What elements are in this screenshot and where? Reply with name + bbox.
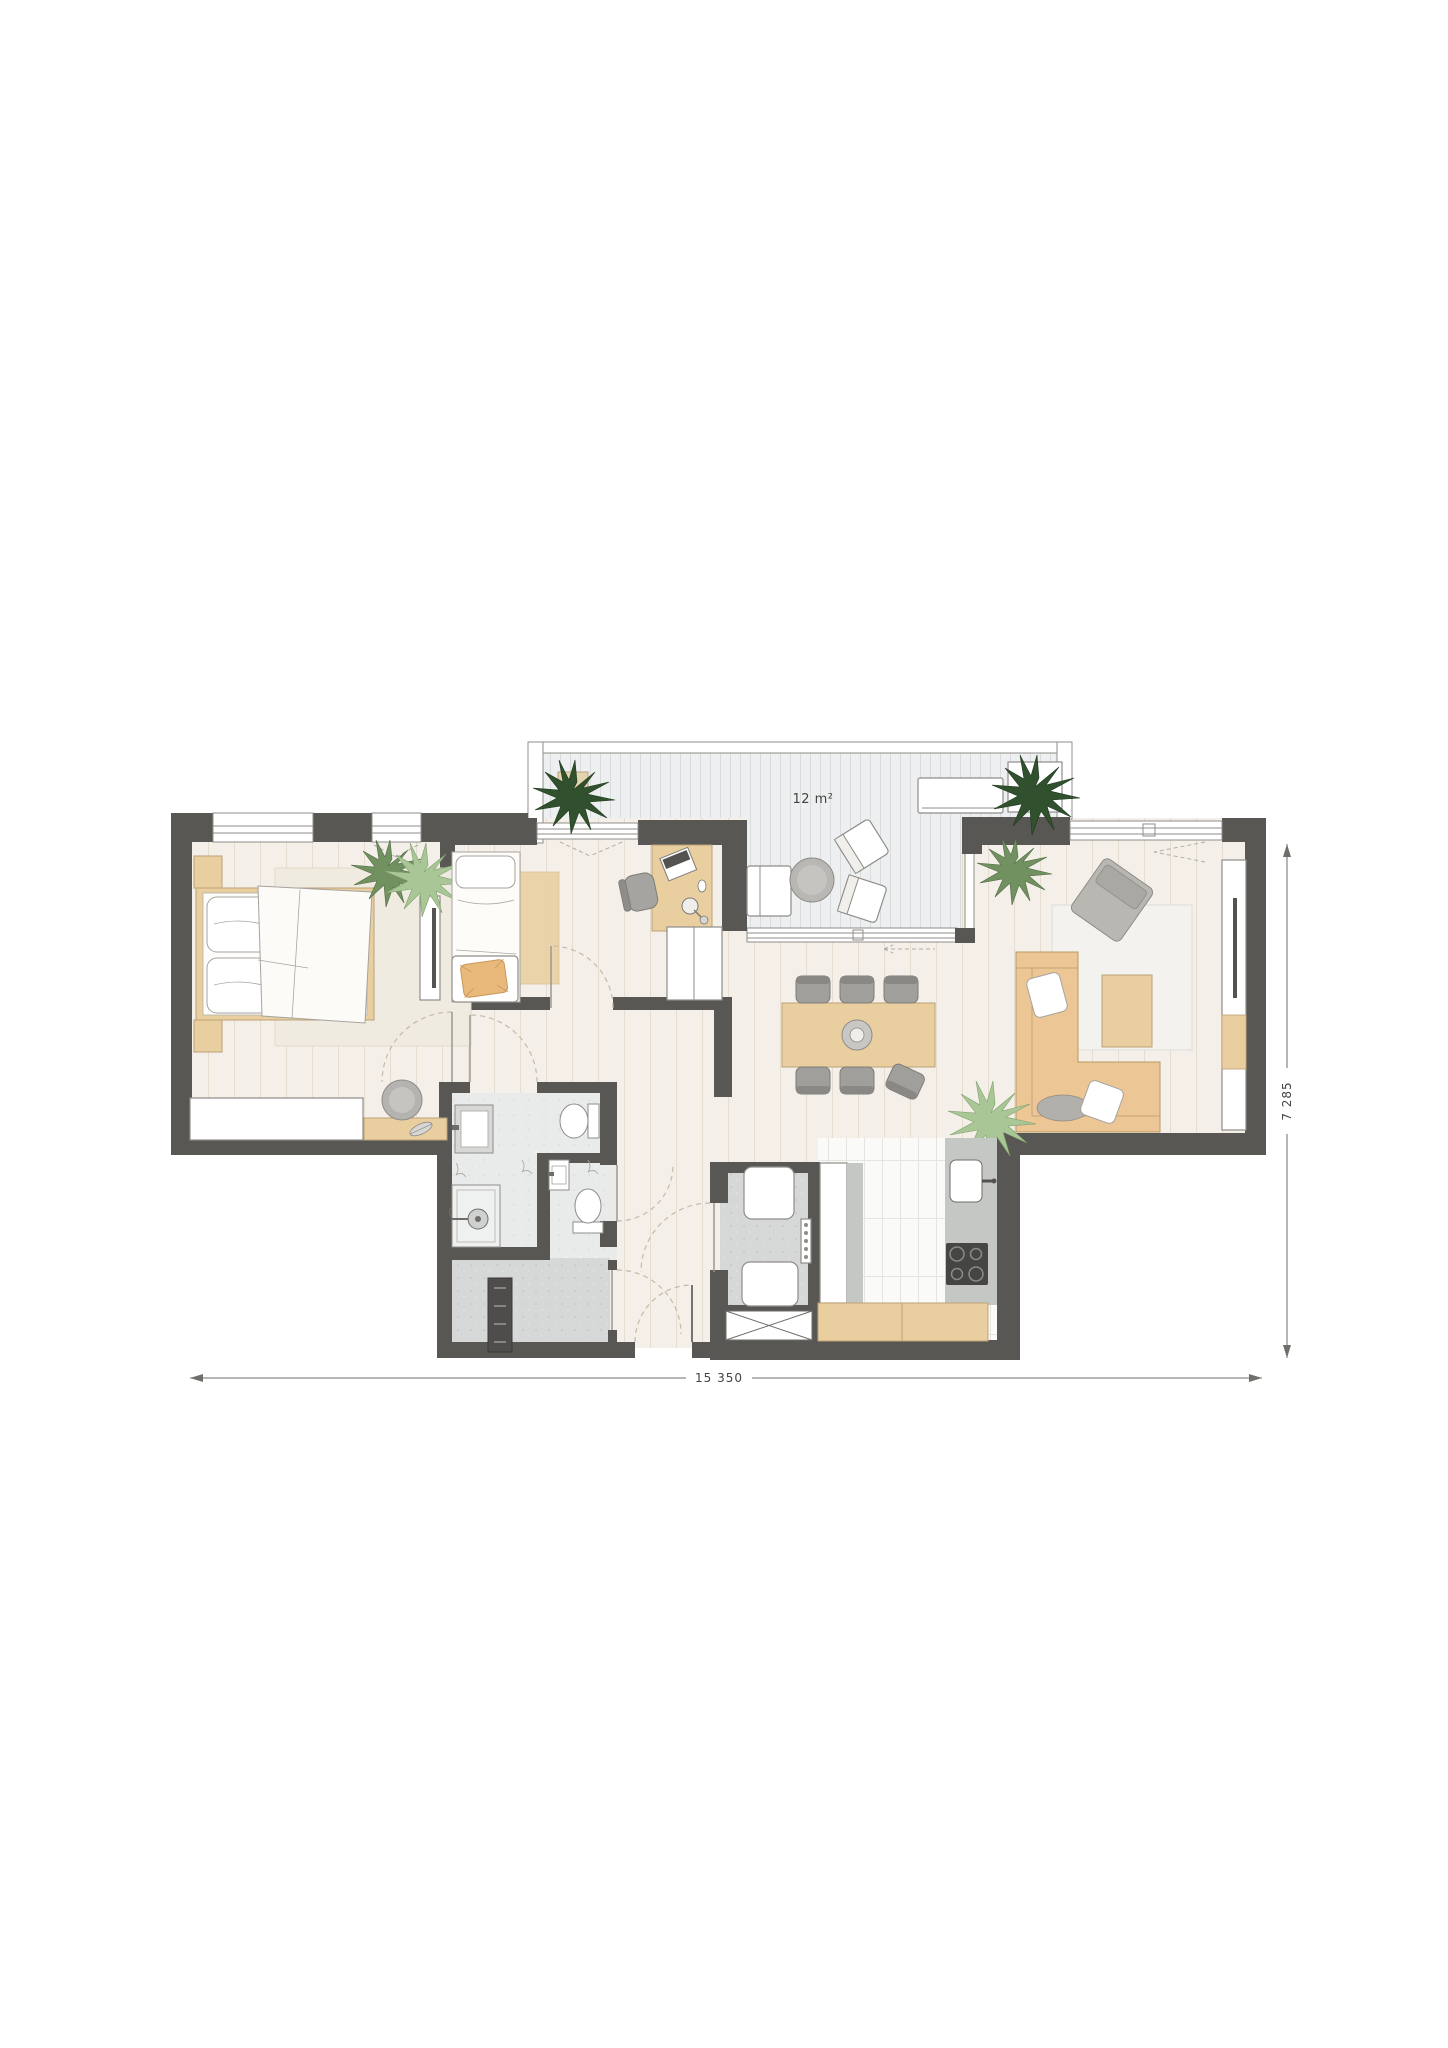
bathroom-toilet bbox=[560, 1104, 599, 1138]
balcony-sliding-door bbox=[747, 928, 957, 942]
wardrobe bbox=[667, 927, 722, 1000]
utility-room bbox=[488, 1278, 512, 1352]
washing-machine bbox=[744, 1167, 794, 1219]
balcony-railing-top bbox=[528, 742, 1072, 753]
dresser bbox=[190, 1098, 363, 1140]
floor-plan-drawing: 12 m² bbox=[0, 0, 1448, 2048]
coffee-table bbox=[1102, 975, 1152, 1047]
kitchen-tall-cabinet bbox=[820, 1163, 847, 1303]
balcony-area-label: 12 m² bbox=[792, 792, 833, 807]
bedroom2-armchair bbox=[452, 956, 518, 1002]
balcony-railing-inner bbox=[965, 852, 974, 930]
nightstand-bottom bbox=[194, 1020, 222, 1052]
kitchen-base-cabinets bbox=[818, 1303, 988, 1341]
exterior-mask-left bbox=[0, 1155, 437, 1455]
balcony-storage-bench bbox=[918, 778, 1003, 813]
floor-plan-page: 12 m² bbox=[0, 0, 1448, 2048]
stove bbox=[946, 1243, 988, 1285]
utility-unit bbox=[488, 1278, 512, 1352]
floor-utility bbox=[452, 1258, 610, 1355]
dimension-height-label: 7 285 bbox=[1280, 1081, 1294, 1120]
tv bbox=[1233, 898, 1237, 998]
bathroom-sink bbox=[452, 1105, 493, 1153]
dimension-width-label: 15 350 bbox=[695, 1371, 743, 1385]
mouse bbox=[698, 880, 706, 892]
installation-shaft bbox=[726, 1311, 812, 1340]
wc-sink bbox=[549, 1160, 569, 1190]
wc-toilet bbox=[573, 1189, 603, 1233]
shower bbox=[450, 1185, 501, 1247]
bedroom1-window-1 bbox=[213, 813, 313, 842]
nightstand-top bbox=[194, 856, 222, 888]
desk bbox=[652, 845, 712, 931]
hook-strip bbox=[801, 1219, 811, 1263]
dryer bbox=[742, 1262, 798, 1306]
kitchen-tall-counter bbox=[847, 1163, 863, 1303]
exterior-mask-right bbox=[1020, 1155, 1448, 1455]
bedroom2-rug bbox=[517, 872, 559, 984]
duvet bbox=[258, 886, 372, 1023]
dining-area bbox=[782, 976, 935, 1101]
tv-unit bbox=[1222, 860, 1246, 1130]
double-bed bbox=[196, 886, 374, 1023]
